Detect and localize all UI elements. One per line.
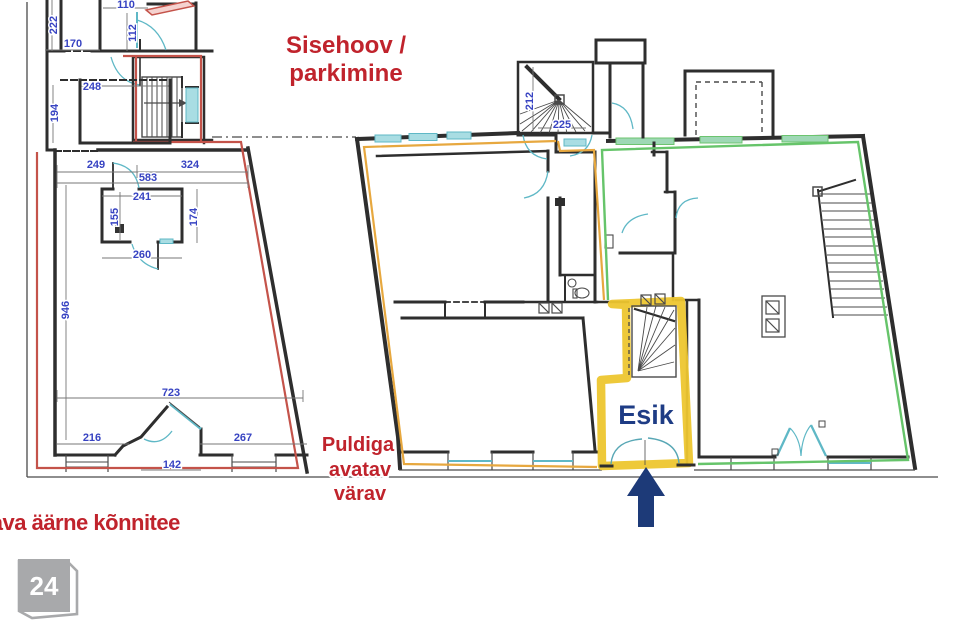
page-badge: 24 [18, 559, 77, 618]
dimension-label-212: 212 [524, 92, 536, 110]
floor-plan-canvas: Esik 222 170 110 112 248 194 249 324 583… [0, 0, 960, 640]
dimension-label-174: 174 [188, 207, 200, 226]
window [782, 136, 828, 143]
dimension-label-946: 946 [60, 301, 72, 319]
gate-label-line2: avatav [329, 459, 392, 481]
dimension-label-225: 225 [553, 119, 571, 131]
dimension-label-155: 155 [109, 208, 121, 226]
courtyard-label-line1: Sisehoov / [286, 32, 406, 59]
dimension-label-324: 324 [181, 159, 200, 171]
dimension-label-170: 170 [64, 38, 82, 50]
window [616, 138, 674, 145]
window [409, 134, 437, 141]
dimension-label-222: 222 [48, 16, 60, 34]
entrance-arrow-icon [627, 467, 665, 527]
dimension-label-216: 216 [83, 432, 101, 444]
dimension-label-267: 267 [234, 432, 252, 444]
dimension-label-723: 723 [162, 387, 180, 399]
window [160, 239, 173, 244]
window [375, 135, 401, 142]
window [447, 132, 471, 139]
dimension-label-260: 260 [133, 249, 151, 261]
gate-label-line1: Puldiga [322, 434, 395, 456]
esik-entry-area: Esik [601, 294, 694, 466]
entry-room-label: Esik [618, 400, 675, 430]
window [564, 139, 586, 146]
page-badge-number: 24 [30, 571, 59, 601]
left-building-plan [27, 0, 938, 477]
sidewalk-label: Tallinna tänava äärne kõnnitee [0, 510, 180, 535]
dimension-label-248: 248 [83, 81, 101, 93]
dimension-label-249: 249 [87, 159, 105, 171]
window [186, 88, 198, 122]
courtyard-label-line2: parkimine [289, 60, 402, 87]
window [700, 137, 742, 144]
gate-label-line3: värav [334, 483, 387, 505]
dimension-label-110: 110 [117, 0, 135, 11]
floor-plan-screenshot: Esik 222 170 110 112 248 194 249 324 583… [0, 0, 960, 640]
dimension-label-112: 112 [127, 24, 139, 42]
dimension-label-142: 142 [163, 459, 181, 471]
dimension-lines [45, 0, 307, 470]
dimension-label-194: 194 [49, 103, 61, 122]
dimension-label-241: 241 [133, 191, 151, 203]
dimension-label-583: 583 [139, 172, 157, 184]
